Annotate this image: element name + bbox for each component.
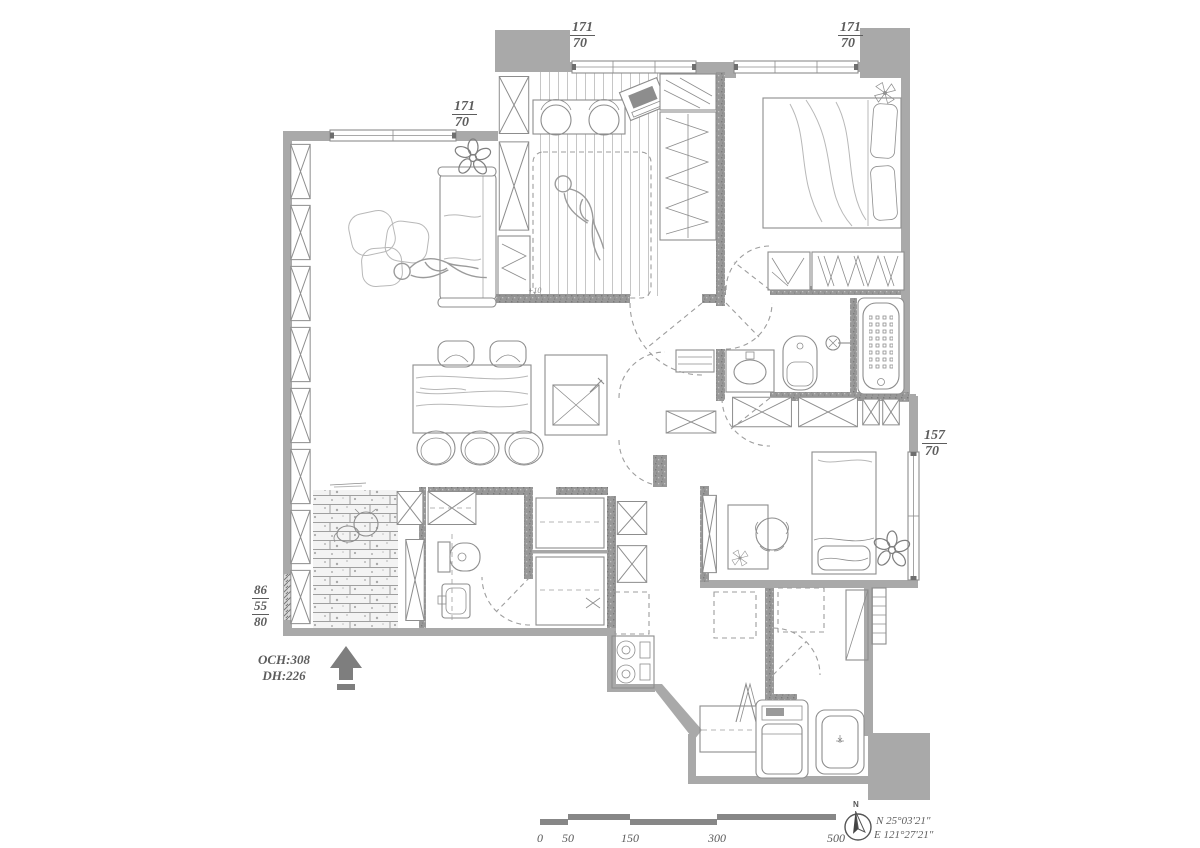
- scale-tick-50: 50: [562, 831, 574, 846]
- toilet-icon: [783, 336, 817, 390]
- scale-tick-500: 500: [827, 831, 845, 846]
- desk-icon: [533, 100, 625, 135]
- window-top-right-icon: [734, 61, 858, 73]
- compass-latitude: N 25°03'21": [876, 814, 930, 828]
- desk-icon: [728, 505, 768, 569]
- x-cabinet-icon: [617, 501, 646, 534]
- shelf-column: [498, 76, 530, 296]
- bedroom-1: [763, 83, 904, 290]
- dim-left-wall-stack: 86 55 80: [252, 583, 269, 630]
- x-cabinet-icon: [666, 411, 716, 433]
- x-cabinet-icon: [617, 546, 646, 583]
- door-swing-icon: [482, 577, 530, 625]
- floor-level-note: +10: [528, 286, 541, 295]
- dim-window-living: 171 70: [452, 99, 477, 131]
- closet-divider-wall: [532, 550, 608, 554]
- dining-area: [413, 341, 607, 465]
- tall-cabinet-icon: [406, 540, 424, 621]
- single-bed-icon: [812, 452, 876, 574]
- door-swing-icon: [726, 246, 770, 290]
- stove-icon: [612, 636, 654, 688]
- window-bedroom2-icon: [908, 452, 919, 580]
- washbasin-icon: [726, 350, 774, 392]
- bean-bag-icon: [346, 208, 430, 287]
- window-living-icon: [330, 130, 456, 141]
- wall-cabinet-column: [291, 144, 310, 623]
- wardrobe-hangers-icon: [660, 74, 716, 240]
- compass-rose-icon: [845, 810, 871, 840]
- sofa-icon: [438, 167, 496, 307]
- door-swing-icon: [773, 628, 820, 675]
- dining-table-icon: [413, 365, 531, 433]
- plant-icon: [873, 531, 912, 568]
- balcony-ledge: [700, 706, 762, 752]
- laundry-sink-icon: [816, 710, 864, 774]
- appliance-dashed-icon: [714, 592, 756, 638]
- ceiling-height-note: OCH:308 DH:226: [258, 652, 310, 685]
- fridge-dashed-icon: [615, 592, 649, 634]
- wardrobe-hangers-icon: [768, 252, 904, 290]
- compass-north-letter: N: [853, 800, 859, 809]
- dim-window-top-right: 171 70: [838, 20, 863, 52]
- wardrobe-row: [733, 397, 900, 426]
- utility-balcony: [700, 588, 886, 778]
- bathroom-2: [406, 534, 480, 624]
- appliance-dashed-icon: [778, 588, 824, 632]
- toilet-icon: [438, 542, 480, 572]
- scale-tick-0: 0: [537, 831, 543, 846]
- storage-closets: [536, 498, 604, 625]
- bathtub-icon: [858, 298, 904, 394]
- bedroom-2: [703, 397, 912, 574]
- entry-brick-floor: [313, 490, 398, 628]
- washbasin-icon: [438, 584, 470, 618]
- floor-plan-canvas: 171 70 171 70 171 70 157 70 86 55 80 OCH…: [0, 0, 1200, 848]
- window-top-left-icon: [572, 61, 696, 73]
- bench-icon: [676, 350, 714, 372]
- kitchen: [612, 501, 654, 688]
- x-cabinet-icon: [703, 495, 717, 572]
- entry-arrow-icon: [330, 646, 362, 690]
- dim-window-bedroom2: 157 70: [922, 428, 947, 460]
- island-sink-icon: [545, 355, 607, 435]
- och-value: OCH:308: [258, 652, 310, 668]
- washing-machine-icon: [756, 700, 808, 778]
- wall-hatch-strip: [284, 574, 291, 620]
- dim-window-top-left: 171 70: [570, 20, 595, 52]
- bathroom-1: [726, 298, 904, 394]
- dh-value: DH:226: [258, 668, 310, 684]
- scale-tick-150: 150: [621, 831, 639, 846]
- ceiling-fan-icon: [732, 550, 748, 566]
- shoe-cabinet-icon: [397, 491, 423, 524]
- hallway: [666, 350, 716, 433]
- scale-tick-300: 300: [708, 831, 726, 846]
- scale-bar-icon: [540, 814, 836, 825]
- double-bed-icon: [763, 98, 901, 228]
- entry-threshold: [330, 483, 366, 487]
- swivel-chair-icon: [756, 518, 789, 551]
- vent-strip: [872, 588, 886, 644]
- floor-plan-drawing: [0, 0, 1200, 848]
- door-swing-icon: [726, 303, 772, 349]
- compass-longitude: E 121°27'21": [874, 828, 933, 842]
- shower-icon: [826, 336, 850, 350]
